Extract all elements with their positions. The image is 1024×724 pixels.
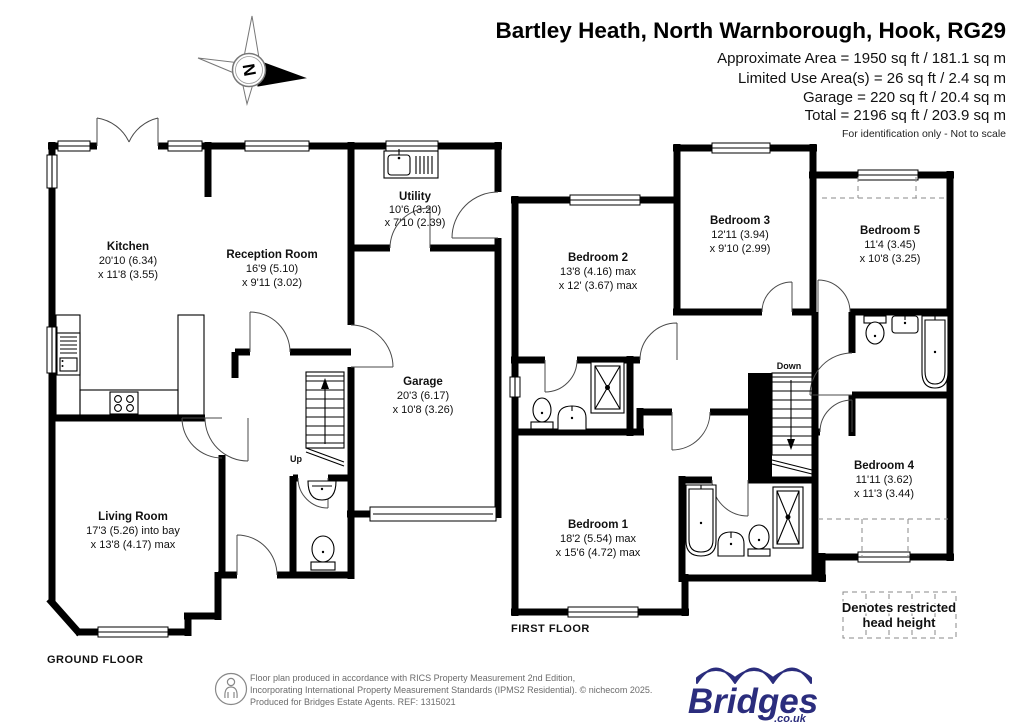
- bathroom2-bath-icon: [922, 316, 948, 388]
- kitchen-dim2: x 11'8 (3.55): [98, 269, 158, 281]
- garage-dim2: x 10'8 (3.26): [393, 404, 454, 416]
- bridges-logo: Bridges .co.uk: [688, 669, 818, 724]
- garage-dim1: 20'3 (6.17): [397, 390, 449, 402]
- bridges-arches-icon: [697, 669, 811, 684]
- reception-dim2: x 9'11 (3.02): [242, 277, 302, 289]
- bedroom3-dim1: 12'11 (3.94): [711, 229, 769, 241]
- bathroom2-toilet-icon: [864, 316, 886, 344]
- bathroom1-shower-icon: [773, 487, 803, 548]
- approximate-area: Approximate Area = 1950 sq ft / 181.1 sq…: [717, 50, 1006, 67]
- footer-line1: Floor plan produced in accordance with R…: [250, 673, 575, 683]
- bedroom5-label: Bedroom 5: [860, 225, 921, 237]
- utility-sink-icon: [384, 149, 438, 178]
- kitchen-counter: [56, 315, 204, 415]
- first-floor-label: FIRST FLOOR: [511, 623, 590, 635]
- bedroom1-dim1: 18'2 (5.54) max: [560, 533, 637, 545]
- header: Bartley Heath, North Warnborough, Hook, …: [496, 18, 1007, 140]
- hob-icon: [110, 392, 138, 414]
- ground-floor-room-labels: Kitchen 20'10 (6.34) x 11'8 (3.55) Recep…: [86, 191, 453, 551]
- living-room-dim1: 17'3 (5.26) into bay: [86, 525, 180, 537]
- ground-floor-stairs: Up: [290, 372, 344, 466]
- living-room-label: Living Room: [98, 511, 168, 523]
- utility-dim2: x 7'10 (2.39): [385, 217, 446, 229]
- restricted-height-legend: Denotes restricted head height: [842, 592, 956, 638]
- page-title: Bartley Heath, North Warnborough, Hook, …: [496, 18, 1006, 43]
- bridges-logo-domain: .co.uk: [774, 713, 807, 724]
- bedroom2-dim2: x 12' (3.67) max: [559, 280, 638, 292]
- person-icon: [216, 674, 247, 705]
- bathroom2-sink-icon: [892, 316, 918, 333]
- living-room-dim2: x 13'8 (4.17) max: [91, 539, 176, 551]
- ensuite-toilet-icon: [531, 398, 553, 429]
- fridge-icon: [57, 333, 80, 375]
- ground-floor-plan: Up: [47, 118, 502, 666]
- bathroom1-bath-icon: [686, 485, 716, 556]
- stairs-up-label: Up: [290, 454, 302, 464]
- ground-floor-label: GROUND FLOOR: [47, 654, 143, 666]
- ensuite-sink-icon: [558, 406, 586, 430]
- compass-icon: N: [198, 16, 305, 104]
- bedroom3-label: Bedroom 3: [710, 215, 770, 227]
- kitchen-dim1: 20'10 (6.34): [99, 255, 157, 267]
- legend-line2: head height: [863, 615, 937, 630]
- first-floor-plan: Down: [510, 143, 954, 635]
- garage-area: Garage = 220 sq ft / 20.4 sq m: [803, 89, 1006, 106]
- limited-use-area: Limited Use Area(s) = 26 sq ft / 2.4 sq …: [738, 70, 1006, 87]
- floorplan-canvas: Bartley Heath, North Warnborough, Hook, …: [0, 0, 1024, 724]
- footer: Floor plan produced in accordance with R…: [216, 673, 653, 707]
- bedroom5-dim2: x 10'8 (3.25): [860, 253, 921, 265]
- identification-note: For identification only - Not to scale: [842, 128, 1006, 140]
- bedroom4-dim1: 11'11 (3.62): [856, 474, 913, 486]
- legend-line1: Denotes restricted: [842, 600, 956, 615]
- footer-line3: Produced for Bridges Estate Agents. REF:…: [250, 697, 456, 707]
- garage-label: Garage: [403, 376, 443, 388]
- wc-toilet-icon: [311, 536, 335, 570]
- bathroom1-sink-icon: [718, 532, 744, 556]
- reception-label: Reception Room: [226, 249, 317, 261]
- stairs-down-label: Down: [777, 361, 802, 371]
- ground-floor-doors: [97, 118, 498, 575]
- utility-dim1: 10'6 (3.20): [389, 204, 441, 216]
- floorplan-page: Bartley Heath, North Warnborough, Hook, …: [0, 0, 1024, 724]
- ensuite-shower-icon: [591, 362, 624, 413]
- wc-sink-icon: [308, 481, 336, 500]
- bedroom4-dim2: x 11'3 (3.44): [854, 488, 914, 500]
- total-area: Total = 2196 sq ft / 203.9 sq m: [805, 107, 1006, 124]
- bedroom4-label: Bedroom 4: [854, 460, 915, 472]
- bedroom5-dim1: 11'4 (3.45): [864, 239, 915, 251]
- bathroom1-toilet-icon: [748, 525, 770, 556]
- bedroom1-label: Bedroom 1: [568, 519, 629, 531]
- bedroom1-dim2: x 15'6 (4.72) max: [556, 547, 641, 559]
- bedroom3-dim2: x 9'10 (2.99): [710, 243, 771, 255]
- footer-line2: Incorporating International Property Mea…: [250, 685, 652, 695]
- bedroom2-label: Bedroom 2: [568, 252, 628, 264]
- bedroom2-dim1: 13'8 (4.16) max: [560, 266, 637, 278]
- kitchen-label: Kitchen: [107, 241, 149, 253]
- first-floor-stairs: Down: [748, 361, 812, 480]
- reception-dim1: 16'9 (5.10): [246, 263, 298, 275]
- utility-label: Utility: [399, 191, 432, 203]
